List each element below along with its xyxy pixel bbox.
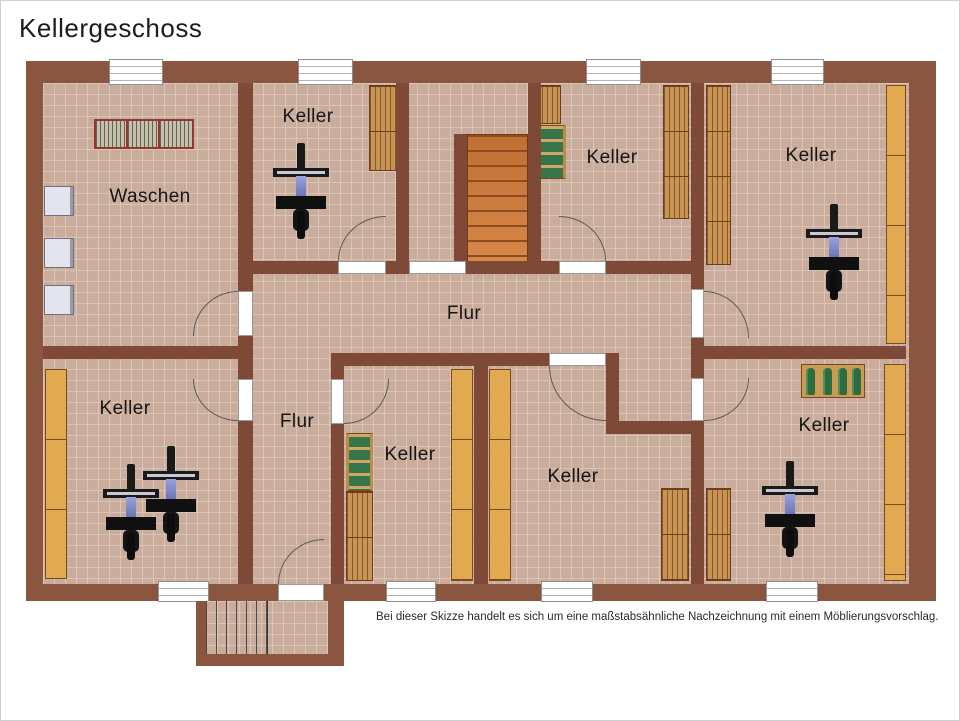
room-label-flur-main: Flur — [447, 303, 481, 325]
wall-segment — [691, 421, 704, 584]
washing-machine-icon — [44, 238, 74, 268]
shelf-icon — [346, 491, 373, 581]
bottle-icon — [838, 368, 847, 395]
wall-segment — [454, 134, 467, 269]
window — [586, 59, 641, 85]
wall-segment — [474, 353, 488, 584]
door-opening — [238, 379, 253, 421]
bottle-icon — [823, 368, 832, 395]
shelf-icon — [663, 85, 689, 219]
exterior-stairs — [196, 601, 344, 666]
drying-rack-icon — [94, 119, 194, 149]
wall-segment — [704, 346, 906, 359]
wall-segment — [396, 83, 409, 261]
room-label-keller-bottom-center: Keller — [548, 466, 599, 488]
door-opening — [691, 378, 704, 421]
washing-machine-icon — [44, 186, 74, 216]
storage-rack-icon — [346, 433, 373, 491]
shelf-icon — [706, 85, 731, 265]
door-opening — [409, 261, 466, 274]
door-opening — [238, 291, 253, 336]
room-label-keller-bottom-small: Keller — [385, 444, 436, 466]
room-label-flur-lower: Flur — [280, 411, 314, 433]
disclaimer-text: Bei dieser Skizze handelt es sich um ein… — [376, 611, 939, 623]
wine-rack-icon — [801, 364, 865, 398]
wall-segment — [606, 261, 691, 274]
floorplan-canvas: Kellergeschoss — [0, 0, 960, 721]
wall-segment — [238, 421, 253, 584]
wall-segment — [606, 353, 619, 421]
wall-segment — [528, 83, 541, 274]
shelf-icon — [369, 85, 397, 171]
door-opening — [549, 353, 606, 366]
window — [541, 581, 593, 602]
door-opening — [691, 289, 704, 338]
room-label-keller-bottom-right: Keller — [799, 415, 850, 437]
wall-segment — [238, 336, 253, 379]
door-opening — [559, 261, 606, 274]
shelf-icon — [884, 364, 906, 581]
door-opening — [331, 379, 344, 424]
room-label-keller-top-middle: Keller — [283, 106, 334, 128]
wall-segment — [606, 421, 704, 434]
wall-segment — [691, 338, 704, 378]
window — [298, 59, 353, 85]
shelf-icon — [706, 488, 731, 581]
bicycle-icon — [143, 446, 199, 542]
room-label-waschen: Waschen — [109, 186, 190, 208]
wall-segment — [466, 261, 559, 274]
room-label-keller-bottom-left: Keller — [100, 398, 151, 420]
bottle-icon — [806, 368, 815, 395]
wall-segment — [238, 83, 253, 291]
wall-segment — [691, 83, 704, 289]
window — [766, 581, 818, 602]
wall-segment — [386, 261, 409, 274]
door-opening — [338, 261, 386, 274]
wall-segment — [331, 353, 344, 379]
wall-segment — [331, 353, 549, 366]
shelf-icon — [661, 488, 689, 581]
wall-segment — [43, 346, 238, 359]
bottle-icon — [852, 368, 861, 395]
bicycle-icon — [806, 204, 862, 300]
bicycle-icon — [762, 461, 818, 557]
exterior-steps-icon — [206, 601, 268, 654]
page-title: Kellergeschoss — [19, 13, 202, 44]
window — [158, 581, 209, 602]
shelf-icon — [489, 369, 511, 581]
shelf-icon — [886, 85, 906, 344]
wall-segment — [331, 424, 344, 584]
window — [109, 59, 163, 85]
washing-machine-icon — [44, 285, 74, 315]
room-label-keller-top-right: Keller — [786, 145, 837, 167]
bicycle-icon — [273, 143, 329, 239]
shelf-icon — [45, 369, 67, 579]
room-label-keller-top-center: Keller — [587, 147, 638, 169]
window — [386, 581, 436, 602]
shelf-icon — [451, 369, 473, 581]
staircase-icon — [467, 134, 528, 269]
window — [771, 59, 824, 85]
wall-segment — [253, 261, 338, 274]
door-opening — [278, 584, 324, 601]
